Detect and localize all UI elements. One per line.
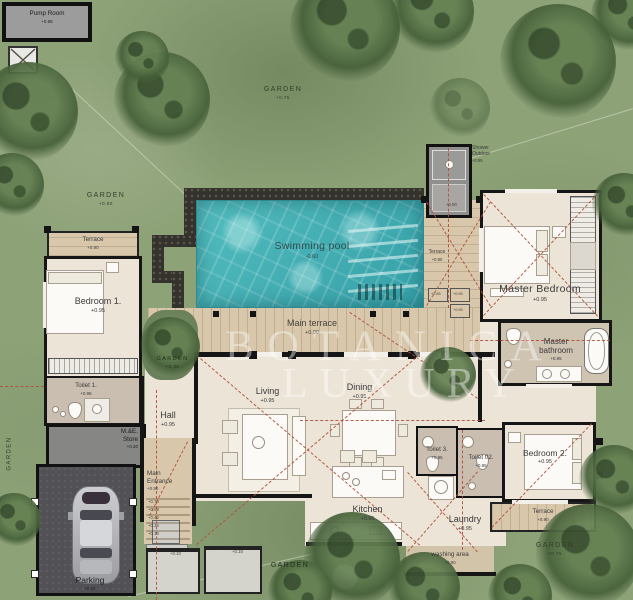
garden-left-edge-label: GARDEN: [6, 428, 13, 480]
tree: [430, 78, 490, 138]
tree: [140, 317, 200, 377]
entrance-step-label: +0.10: [148, 531, 170, 536]
entrance-step-label: +0.26: [148, 523, 170, 528]
car-windshield: [80, 510, 112, 520]
armchair: [222, 452, 238, 466]
window: [512, 500, 568, 504]
pillow: [48, 272, 102, 284]
tree: [290, 0, 400, 83]
coffee-table: [252, 436, 265, 449]
bathtub-basin: [588, 332, 605, 370]
dining-chair: [371, 399, 384, 409]
stool: [362, 450, 377, 463]
shower-step-label: +0.90: [446, 202, 468, 207]
shower-drain-icon: [445, 160, 454, 169]
floor-corridor: [480, 386, 596, 422]
entrance-step-label: +0.58: [148, 507, 170, 512]
post-marker: [44, 226, 51, 233]
layout-line: [0, 386, 44, 387]
car: [72, 486, 120, 584]
tree: [0, 153, 44, 217]
kitchen-sink: [382, 470, 396, 480]
sink: [60, 411, 66, 417]
car-trunk: [80, 560, 112, 574]
nightstand: [508, 432, 521, 443]
post-marker: [288, 351, 296, 359]
shower-drain-icon: [92, 404, 102, 414]
bedroom1-terrace: [47, 231, 139, 258]
me-store: [46, 424, 146, 468]
garden-top-label: GARDEN +0.75: [253, 86, 313, 101]
entrance-step-label: +0.42: [148, 515, 170, 520]
post-marker: [213, 311, 219, 317]
tree: [420, 347, 476, 403]
terrace-step-label: +0.95: [453, 292, 469, 296]
pool-deck: [172, 271, 184, 311]
tree: [390, 0, 474, 54]
sink: [542, 369, 552, 379]
washer-drum-icon: [434, 480, 448, 494]
stone-level-label: +0.10: [232, 549, 254, 554]
bedroom1-wardrobe: [48, 358, 138, 374]
stool: [340, 450, 355, 463]
post-marker: [129, 570, 137, 578]
entrance-step-label: +0.74: [148, 499, 170, 504]
shower-step: [432, 184, 466, 212]
dining-chair: [398, 424, 408, 437]
car-rear-window: [80, 548, 112, 558]
layout-line: [300, 420, 485, 421]
post-marker: [476, 196, 483, 203]
car-roof: [80, 520, 112, 546]
car-sunroof: [82, 492, 110, 504]
sink: [52, 406, 59, 413]
sink: [422, 436, 434, 448]
tree: [0, 62, 78, 162]
post-marker: [249, 351, 257, 359]
post-marker: [370, 311, 376, 317]
post-marker: [31, 570, 39, 578]
window: [526, 384, 572, 388]
layout-line: [448, 148, 449, 308]
nightstand: [106, 262, 119, 273]
window: [505, 189, 557, 193]
dresser: [570, 242, 596, 270]
window: [344, 352, 388, 357]
stone-level-label: +0.10: [170, 551, 192, 556]
site-plan: Pump Room +0.95 GARDEN +0.75 GARDEN +0.8…: [0, 0, 633, 600]
pool-deck: [184, 188, 424, 200]
post-marker: [250, 311, 256, 317]
sink: [560, 369, 570, 379]
tree: [115, 31, 169, 85]
post-marker: [132, 226, 139, 233]
wall: [194, 352, 198, 444]
post-marker: [596, 438, 603, 445]
sink: [462, 436, 474, 448]
car-mirror: [119, 512, 124, 520]
armchair: [222, 420, 238, 434]
cooktop-icon: [352, 478, 360, 486]
layout-line: [470, 340, 610, 341]
shower-drain-icon: [504, 360, 512, 368]
terrace-step-label: +0.95: [453, 308, 469, 312]
car-mirror: [68, 512, 73, 520]
terrace-step-label: +0.85: [431, 292, 447, 296]
layout-line: [462, 430, 463, 550]
shower-drain-icon: [468, 482, 476, 490]
pump-room: [2, 2, 92, 42]
wall: [192, 438, 196, 526]
wall: [478, 352, 482, 422]
garden-left-label: GARDEN +0.80: [74, 192, 138, 207]
post-marker: [403, 311, 409, 317]
window: [479, 228, 483, 272]
pool-grate: [358, 284, 402, 300]
layout-line: [156, 390, 157, 600]
post-marker: [129, 498, 137, 506]
entrance-step: [146, 538, 190, 540]
wall: [140, 376, 144, 522]
